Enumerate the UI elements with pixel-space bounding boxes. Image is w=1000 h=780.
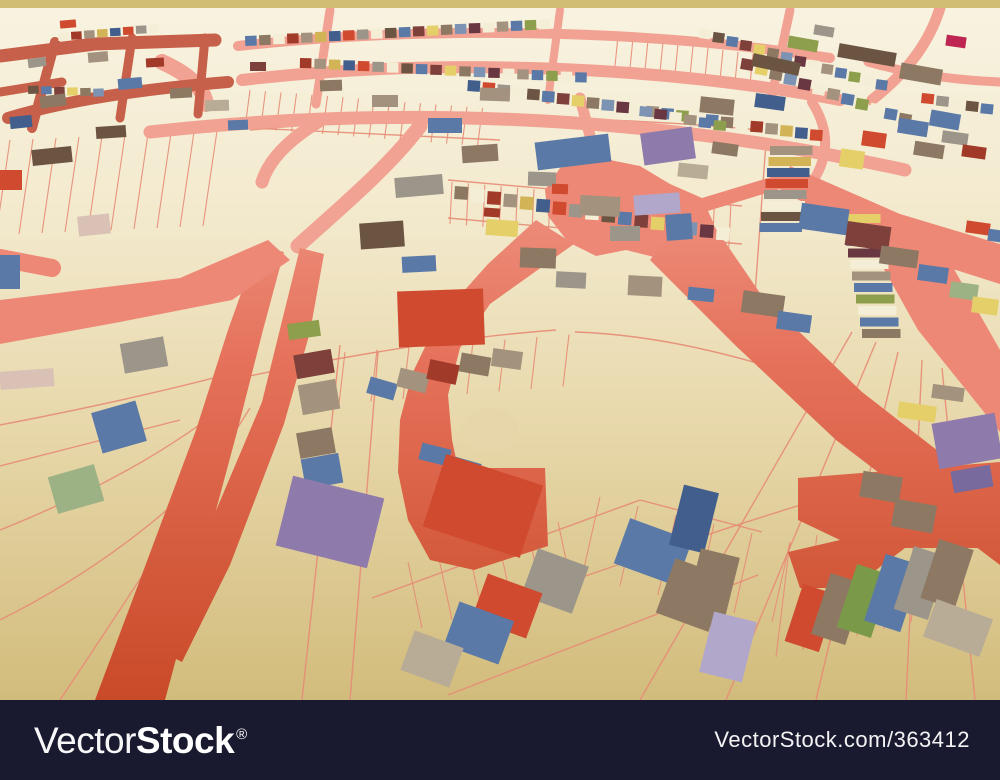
registered-mark: ® [236, 726, 247, 743]
vectorstock-logo: VectorStock® [34, 722, 247, 759]
image-id-url: VectorStock.com/363412 [714, 727, 970, 753]
streetmap-illustration [0, 0, 1000, 700]
watermark-footer: VectorStock® VectorStock.com/363412 [0, 700, 1000, 780]
logo-text-light: Vector [34, 720, 136, 761]
logo-text-bold: Stock [136, 720, 234, 761]
map-illustration-area [0, 0, 1000, 700]
top-border-bar [0, 0, 1000, 8]
stock-image-preview: VectorStock® VectorStock.com/363412 [0, 0, 1000, 780]
